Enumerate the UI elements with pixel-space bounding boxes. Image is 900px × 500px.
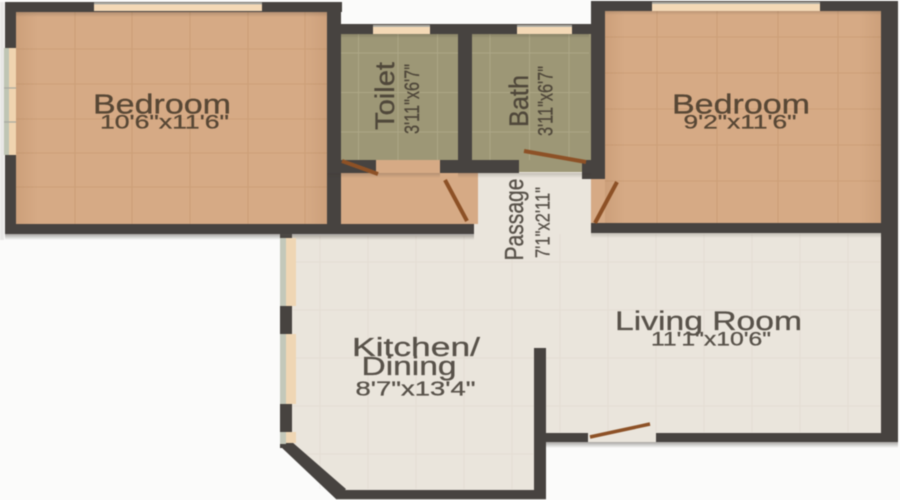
svg-text:Toilet: Toilet — [370, 61, 400, 130]
svg-text:3'11"x6'7": 3'11"x6'7" — [401, 64, 424, 134]
svg-text:9'2"x11'6": 9'2"x11'6" — [684, 112, 797, 134]
svg-text:Passage: Passage — [499, 179, 529, 261]
svg-text:11'1"x10'6": 11'1"x10'6" — [651, 330, 771, 351]
svg-text:10'6"x11'6": 10'6"x11'6" — [100, 112, 229, 134]
svg-text:7'1"x2'11": 7'1"x2'11" — [533, 187, 555, 258]
svg-text:3'11"x6'7": 3'11"x6'7" — [535, 66, 558, 136]
svg-text:Bath: Bath — [504, 75, 534, 127]
svg-text:8'7"x13'4": 8'7"x13'4" — [356, 378, 476, 401]
